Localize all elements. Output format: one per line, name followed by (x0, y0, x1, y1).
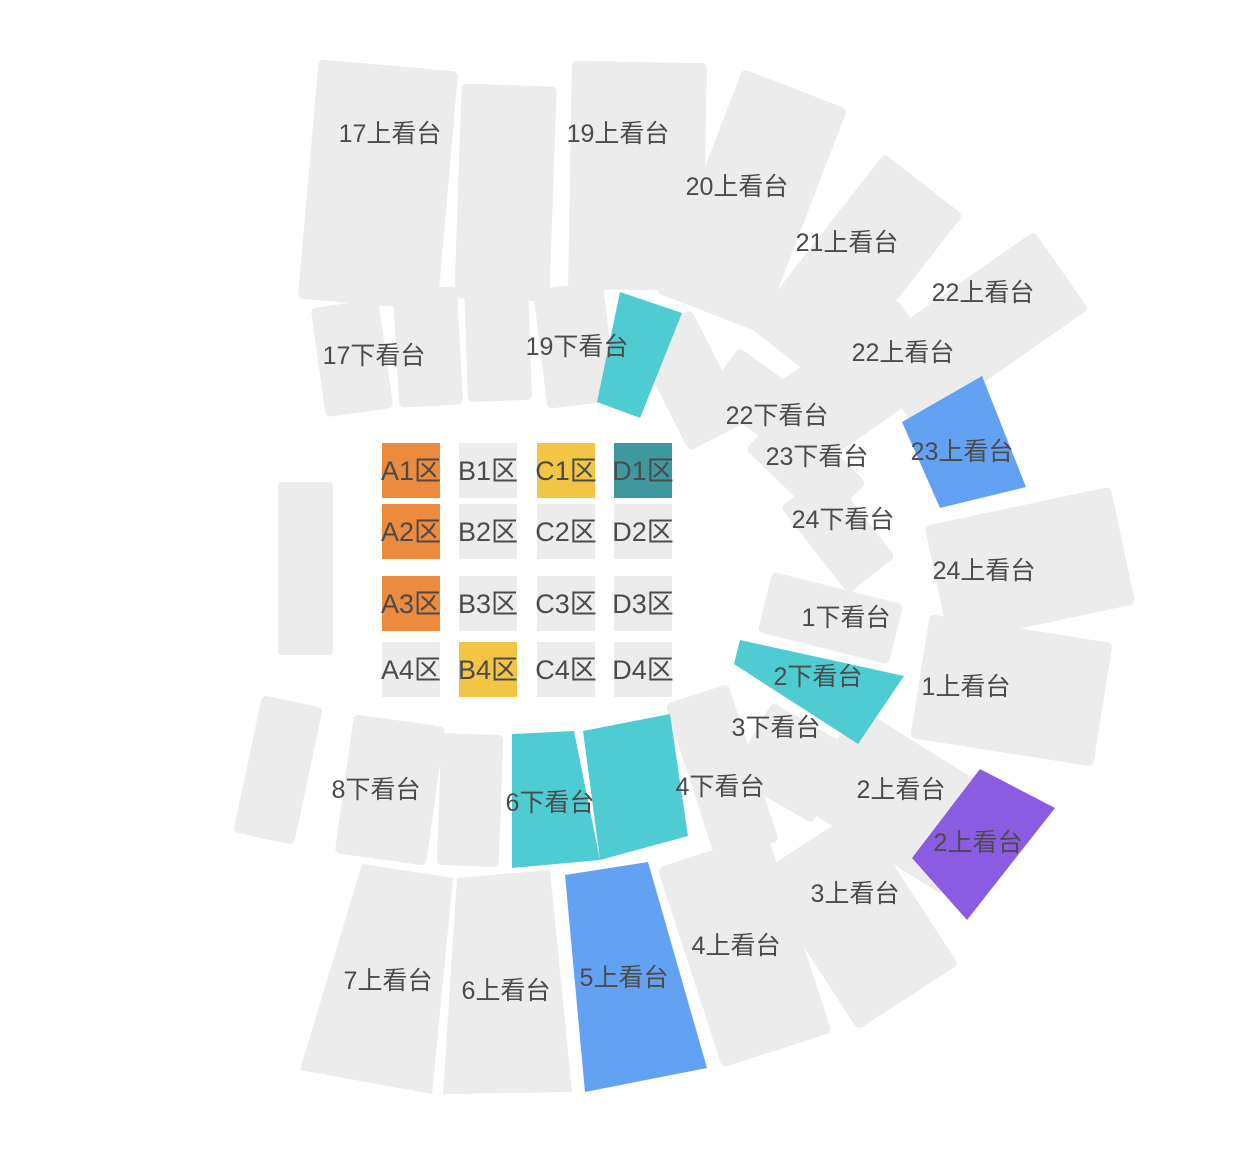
seat-block-b3[interactable] (459, 576, 517, 631)
stand-side-block[interactable] (278, 482, 333, 655)
stand-7-upper[interactable] (300, 864, 453, 1094)
stand-17-lower-b[interactable] (393, 286, 463, 407)
seat-block-d2[interactable] (614, 504, 672, 559)
seat-block-c3[interactable] (537, 576, 595, 631)
seat-block-b1[interactable] (459, 443, 517, 498)
stand-7-lower[interactable] (437, 733, 504, 867)
seat-block-c2[interactable] (537, 504, 595, 559)
seat-block-c4[interactable] (537, 642, 595, 697)
stand-18-upper[interactable] (454, 83, 556, 301)
seat-block-c1[interactable] (537, 443, 595, 498)
stand-5-lower[interactable] (583, 714, 688, 860)
arena-seat-map: 17上看台 19上看台 20上看台 21上看台 22上看台 22上看台 23上看… (0, 0, 1242, 1149)
seat-block-d4[interactable] (614, 642, 672, 697)
stand-17-upper[interactable] (298, 59, 458, 310)
seat-block-d1[interactable] (614, 443, 672, 498)
stand-unlabeled-southwest[interactable] (233, 695, 323, 845)
stand-6-upper[interactable] (443, 870, 572, 1094)
stand-8-lower[interactable] (335, 714, 446, 865)
seat-block-a4[interactable] (382, 642, 440, 697)
seat-block-a2[interactable] (382, 504, 440, 559)
seat-block-b2[interactable] (459, 504, 517, 559)
stand-18-lower[interactable] (464, 280, 532, 402)
seat-block-b4[interactable] (459, 642, 517, 697)
seat-block-a3[interactable] (382, 576, 440, 631)
stand-1-upper[interactable] (910, 614, 1112, 766)
seat-block-a1[interactable] (382, 443, 440, 498)
seat-block-d3[interactable] (614, 576, 672, 631)
seat-blocks-layer (382, 443, 672, 697)
stand-17-lower[interactable] (311, 299, 394, 417)
stands-layer (233, 59, 1135, 1094)
